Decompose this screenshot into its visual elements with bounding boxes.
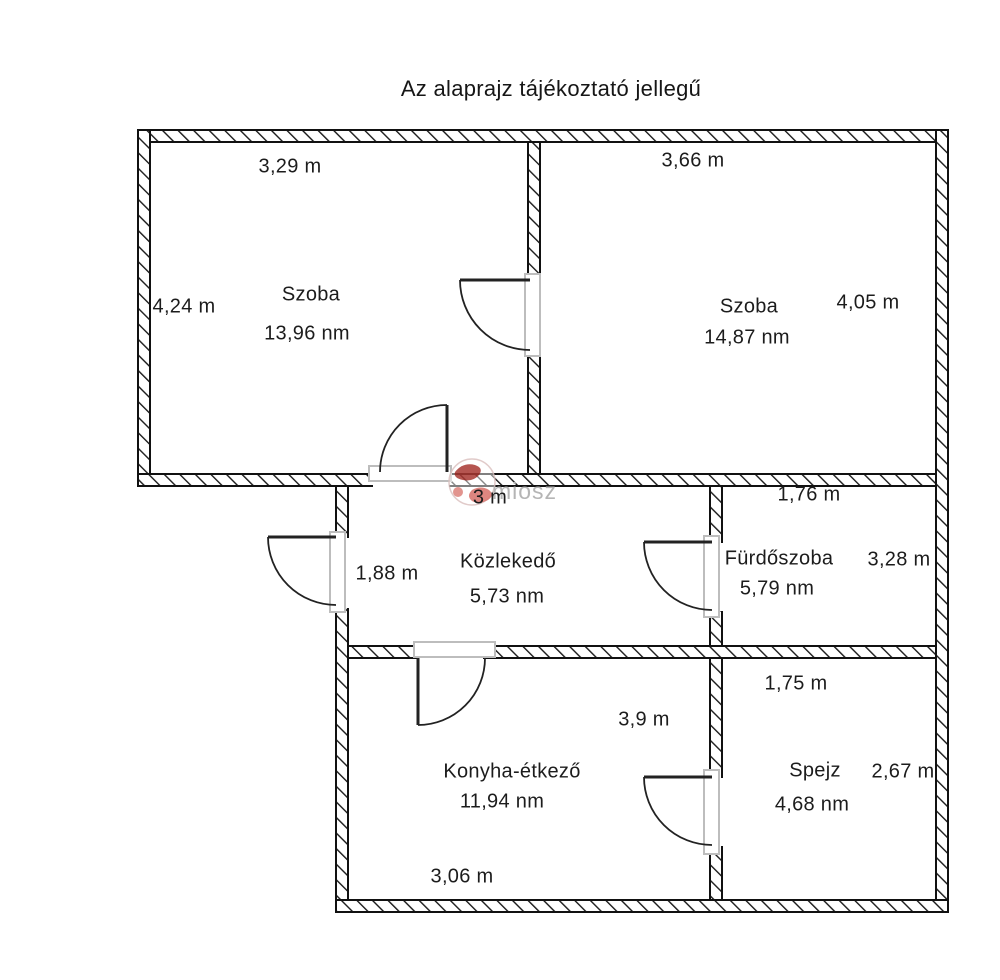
dim-szoba1-top: 3,29 m <box>259 156 322 179</box>
dim-spejz-top: 1,75 m <box>765 673 828 696</box>
room-area-furdoszoba: 5,79 nm <box>740 578 814 601</box>
door-frame <box>369 466 451 481</box>
wall-top-exterior <box>138 130 948 142</box>
dim-szoba1-left: 4,24 m <box>153 296 216 319</box>
dim-szoba2-top: 3,66 m <box>662 150 725 173</box>
room-name-kozlekedo: Közlekedő <box>460 551 556 574</box>
door-frame <box>525 274 540 356</box>
dim-kozlekedo-top: 3 m <box>473 487 507 510</box>
room-area-szoba2: 14,87 nm <box>704 327 790 350</box>
dim-kozlekedo-left: 1,88 m <box>356 563 419 586</box>
room-area-szoba1: 13,96 nm <box>264 323 350 346</box>
room-area-spejz: 4,68 nm <box>775 794 849 817</box>
door-arc <box>268 537 336 605</box>
room-name-szoba2: Szoba <box>720 296 778 319</box>
dim-furdoszoba-right: 3,28 m <box>868 549 931 572</box>
door-szoba-to-szoba <box>460 280 530 350</box>
door-frame <box>704 770 719 854</box>
door-arc <box>644 542 712 610</box>
room-name-furdoszoba: Fürdőszoba <box>725 548 834 571</box>
dim-szoba2-right: 4,05 m <box>837 292 900 315</box>
plan-title: Az alaprajz tájékoztató jellegű <box>401 76 701 102</box>
room-name-spejz: Spejz <box>789 760 841 783</box>
door-spejz <box>644 777 712 845</box>
wall-left-exterior <box>138 130 150 486</box>
door-frame <box>330 532 345 612</box>
door-arc <box>418 658 485 725</box>
door-arc <box>380 405 447 472</box>
floor-plan-page: miosz Az alaprajz tájékoztató jellegű 3,… <box>0 0 1000 980</box>
wall-right-exterior <box>936 130 948 912</box>
room-name-szoba1: Szoba <box>282 284 340 307</box>
door-frame <box>414 642 495 657</box>
room-area-konyha: 11,94 nm <box>460 791 544 814</box>
door-konyha <box>418 658 485 725</box>
wall-bottom-exterior <box>336 900 948 912</box>
door-arc <box>460 280 530 350</box>
dim-konyha-right: 3,9 m <box>618 709 670 732</box>
door-frame <box>704 536 719 617</box>
door-entrance <box>268 537 336 605</box>
door-szoba-to-kozlekedo <box>380 405 447 472</box>
dim-konyha-bottom: 3,06 m <box>431 866 494 889</box>
dim-furdoszoba-top: 1,76 m <box>778 484 841 507</box>
dim-spejz-right: 2,67 m <box>872 761 935 784</box>
door-furdoszoba <box>644 542 712 610</box>
room-area-kozlekedo: 5,73 nm <box>470 586 544 609</box>
room-name-konyha: Konyha-étkező <box>443 761 580 784</box>
door-arc <box>644 777 712 845</box>
